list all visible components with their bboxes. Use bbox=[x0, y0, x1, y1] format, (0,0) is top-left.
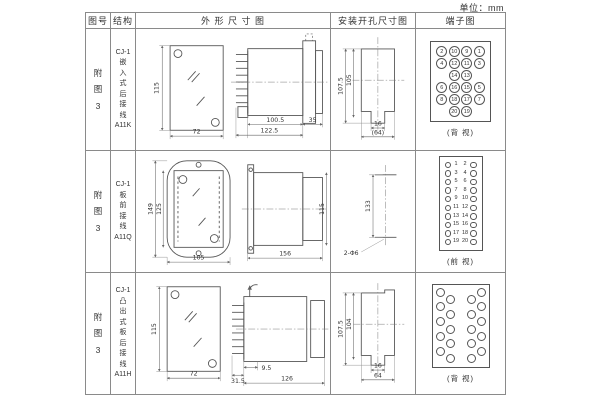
header-structure: 结构 bbox=[111, 13, 136, 29]
dim-install-spacing: 133 bbox=[365, 200, 372, 212]
terminal-circle bbox=[470, 196, 477, 203]
terminal-circle bbox=[446, 339, 455, 348]
terminal-circle bbox=[446, 325, 455, 334]
install-drawing-a11k: 107.5 105 16 (64) bbox=[332, 29, 415, 145]
terminal-number: 14 bbox=[461, 214, 469, 220]
terminal-circle bbox=[436, 347, 445, 356]
terminal-circle: 15 bbox=[461, 82, 472, 93]
terminal-circle bbox=[467, 295, 476, 304]
terminal-number: 11 bbox=[452, 205, 460, 211]
terminal-circle: 12 bbox=[449, 58, 460, 69]
dim-install-outer-w: (64) bbox=[371, 129, 384, 136]
terminal-row: 56 bbox=[445, 178, 477, 186]
terminal-circle bbox=[467, 310, 476, 319]
outline-drawing-a11q: 149 125 105 156 115 bbox=[137, 151, 330, 267]
terminal-circle: 2 bbox=[436, 46, 447, 57]
structure-cell: CJ-1 板 前 接 线 A11Q bbox=[111, 151, 136, 273]
outline-drawing-cell: 115 72 31.5 9.5 bbox=[136, 273, 331, 395]
terminal-circle: 14 bbox=[449, 70, 460, 81]
terminal-circle: 5 bbox=[474, 82, 485, 93]
install-drawing-cell: 107.5 105 16 (64) bbox=[331, 29, 416, 151]
terminal-circle bbox=[477, 288, 486, 297]
terminal-row: 21091 bbox=[436, 46, 485, 57]
terminal-diagram: 1234567891011121314151617181920 (前 视) bbox=[416, 156, 505, 267]
dim-front-width: 105 bbox=[192, 255, 204, 262]
terminal-diagram-cell: (背 视) bbox=[416, 273, 506, 395]
outline-drawing-a11h: 115 72 31.5 9.5 bbox=[137, 273, 330, 389]
dim-side-flange: 35 bbox=[308, 117, 316, 124]
terminal-circle: 11 bbox=[461, 58, 472, 69]
dim-side-total: 122.5 bbox=[260, 128, 278, 135]
header-install-holes: 安装开孔尺寸图 bbox=[331, 13, 416, 29]
terminal-row: 12 bbox=[445, 161, 477, 169]
dim-install-outer-w: 64 bbox=[373, 372, 381, 379]
terminal-circle bbox=[477, 302, 486, 311]
dim-front-height: 115 bbox=[150, 323, 157, 335]
terminal-number: 18 bbox=[461, 231, 469, 237]
terminal-circle: 4 bbox=[436, 58, 447, 69]
view-label: (前 视) bbox=[447, 256, 474, 267]
terminal-circle: 6 bbox=[436, 82, 447, 93]
terminal-number: 4 bbox=[461, 171, 469, 177]
terminal-diagram: (背 视) bbox=[416, 284, 505, 384]
terminal-circle: 9 bbox=[461, 46, 472, 57]
terminal-circle bbox=[470, 179, 477, 186]
dim-front-width: 72 bbox=[189, 371, 197, 378]
terminal-number: 20 bbox=[461, 239, 469, 245]
terminal-number: 16 bbox=[461, 222, 469, 228]
terminal-circle bbox=[470, 205, 477, 212]
terminal-block: 2109141211314136161558181772019 bbox=[430, 41, 491, 122]
terminal-circle bbox=[477, 317, 486, 326]
terminal-diagram-cell: 2109141211314136161558181772019 (背 视) bbox=[416, 29, 506, 151]
terminal-diagram-a11k: 2109141211314136161558181772019 bbox=[430, 41, 491, 122]
terminal-circle bbox=[445, 213, 452, 220]
dim-install-slot-w: 16 bbox=[373, 363, 381, 370]
terminal-number: 5 bbox=[452, 179, 460, 185]
terminal-row: 412113 bbox=[436, 58, 485, 69]
dim-install-inner-h: 104 bbox=[346, 318, 353, 330]
dim-side-terminals: 31.5 bbox=[231, 378, 245, 385]
terminal-number: 3 bbox=[452, 171, 460, 177]
table-row: 附 图 3 CJ-1 嵌 入 式 后 接 线 A11K 115 72 bbox=[86, 29, 506, 151]
terminal-row: 1516 bbox=[445, 221, 477, 229]
terminal-circle bbox=[445, 179, 452, 186]
install-drawing-a11q: 133 2-Φ6 bbox=[332, 151, 415, 267]
terminal-number: 2 bbox=[461, 162, 469, 168]
terminal-number: 1 bbox=[452, 162, 460, 168]
terminal-circle bbox=[467, 339, 476, 348]
terminal-number: 9 bbox=[452, 196, 460, 202]
install-drawing-cell: 107.5 104 16 64 bbox=[331, 273, 416, 395]
view-label: (背 视) bbox=[447, 373, 474, 384]
hatch-mark bbox=[187, 71, 199, 82]
header-terminal-diagram: 端子图 bbox=[416, 13, 506, 29]
install-drawing-cell: 133 2-Φ6 bbox=[331, 151, 416, 273]
dim-front-height: 115 bbox=[153, 82, 160, 94]
terminal-row: 1314 bbox=[445, 213, 477, 221]
header-outline-dims: 外 形 尺 寸 图 bbox=[136, 13, 331, 29]
terminal-circle: 7 bbox=[474, 94, 485, 105]
terminal-row: 78 bbox=[445, 187, 477, 195]
terminal-circle bbox=[467, 325, 476, 334]
terminal-diagram-a11q: 1234567891011121314151617181920 bbox=[439, 156, 483, 251]
terminal-circle bbox=[445, 170, 452, 177]
terminal-circle bbox=[445, 239, 452, 246]
terminal-row: 2019 bbox=[436, 106, 485, 117]
terminal-circle: 17 bbox=[461, 94, 472, 105]
figure-no-cell: 附 图 3 bbox=[86, 29, 111, 151]
terminal-number: 15 bbox=[452, 222, 460, 228]
dim-side-offset: 9.5 bbox=[261, 365, 271, 372]
terminal-diagram-cell: 1234567891011121314151617181920 (前 视) bbox=[416, 151, 506, 273]
terminal-diagram: 2109141211314136161558181772019 (背 视) bbox=[416, 41, 505, 138]
terminal-circle bbox=[436, 302, 445, 311]
header-row: 图号 结构 外 形 尺 寸 图 安装开孔尺寸图 端子图 bbox=[86, 13, 506, 29]
terminal-circle bbox=[470, 162, 477, 169]
terminal-circle bbox=[467, 354, 476, 363]
terminal-number: 7 bbox=[452, 188, 460, 194]
terminal-circle: 10 bbox=[449, 46, 460, 57]
terminal-row: 1718 bbox=[445, 230, 477, 238]
terminal-circle: 19 bbox=[461, 106, 472, 117]
terminal-circle bbox=[445, 187, 452, 194]
dim-front-outer-h: 149 bbox=[147, 203, 154, 215]
terminal-row: 34 bbox=[445, 170, 477, 178]
header-figure-no: 图号 bbox=[86, 13, 111, 29]
terminal-circle bbox=[445, 222, 452, 229]
terminal-circle bbox=[470, 213, 477, 220]
figure-no-cell: 附 图 3 bbox=[86, 151, 111, 273]
terminal-block bbox=[432, 284, 490, 368]
terminal-circle: 18 bbox=[449, 94, 460, 105]
terminal-row: 1112 bbox=[445, 204, 477, 212]
install-drawing-a11h: 107.5 104 16 64 bbox=[332, 273, 415, 389]
terminal-number: 8 bbox=[461, 188, 469, 194]
terminal-diagram-a11h bbox=[432, 284, 490, 368]
dim-side-length: 126 bbox=[281, 376, 293, 383]
table-row: 附 图 3 CJ-1 凸 出 式 板 后 接 线 A11H 115 72 bbox=[86, 273, 506, 395]
terminal-circle bbox=[470, 239, 477, 246]
terminal-circle bbox=[477, 347, 486, 356]
dim-install-inner-h: 105 bbox=[346, 74, 353, 86]
terminal-circle bbox=[477, 332, 486, 341]
terminal-circle bbox=[445, 230, 452, 237]
terminal-row: 818177 bbox=[436, 94, 485, 105]
dim-front-inner-h: 125 bbox=[155, 203, 162, 215]
terminal-row: 616155 bbox=[436, 82, 485, 93]
terminal-number: 6 bbox=[461, 179, 469, 185]
terminal-row: 910 bbox=[445, 195, 477, 203]
terminal-circle bbox=[446, 354, 455, 363]
terminal-circle: 8 bbox=[436, 94, 447, 105]
dim-install-outer-h: 107.5 bbox=[337, 320, 344, 338]
terminal-circle bbox=[436, 332, 445, 341]
dim-side-body: 100.5 bbox=[266, 117, 284, 124]
terminal-circle bbox=[445, 196, 452, 203]
table-row: 附 图 3 CJ-1 板 前 接 线 A11Q 149 125 bbox=[86, 151, 506, 273]
dim-install-slot-w: 16 bbox=[373, 121, 381, 128]
view-label: (背 视) bbox=[447, 127, 474, 138]
hatch-mark bbox=[184, 311, 196, 322]
terminal-row: 1920 bbox=[445, 238, 477, 246]
structure-cell: CJ-1 嵌 入 式 后 接 线 A11K bbox=[111, 29, 136, 151]
terminal-circle bbox=[445, 205, 452, 212]
terminal-circle bbox=[445, 162, 452, 169]
dim-side-length: 156 bbox=[279, 251, 291, 258]
terminal-circle bbox=[436, 317, 445, 326]
terminal-number: 17 bbox=[452, 231, 460, 237]
terminal-circle bbox=[470, 230, 477, 237]
dim-front-width: 72 bbox=[192, 129, 200, 136]
terminal-circle: 20 bbox=[449, 106, 460, 117]
terminal-circle bbox=[446, 310, 455, 319]
terminal-circle: 13 bbox=[461, 70, 472, 81]
dim-side-height: 115 bbox=[318, 203, 325, 215]
relay-spec-sheet: 图号 结构 外 形 尺 寸 图 安装开孔尺寸图 端子图 附 图 3 CJ-1 嵌… bbox=[85, 12, 506, 395]
terminal-circle bbox=[470, 222, 477, 229]
outline-drawing-cell: 149 125 105 156 115 bbox=[136, 151, 331, 273]
hatch-mark bbox=[193, 338, 201, 347]
terminal-number: 19 bbox=[452, 239, 460, 245]
terminal-number: 12 bbox=[461, 205, 469, 211]
hatch-mark bbox=[196, 97, 204, 106]
terminal-number: 10 bbox=[461, 196, 469, 202]
terminal-circle bbox=[446, 295, 455, 304]
terminal-circle: 3 bbox=[474, 58, 485, 69]
hatch-mark bbox=[192, 188, 205, 225]
terminal-circle: 1 bbox=[474, 46, 485, 57]
terminal-number: 13 bbox=[452, 214, 460, 220]
terminal-circle: 16 bbox=[449, 82, 460, 93]
terminal-row: 1413 bbox=[436, 70, 485, 81]
terminal-block: 1234567891011121314151617181920 bbox=[439, 156, 483, 251]
terminal-circle bbox=[436, 288, 445, 297]
dim-install-outer-h: 107.5 bbox=[337, 77, 344, 95]
figure-no-cell: 附 图 3 bbox=[86, 273, 111, 395]
outline-drawing-a11k: 115 72 100.5 1 bbox=[137, 29, 330, 145]
hole-spec-label: 2-Φ6 bbox=[343, 250, 358, 257]
terminal-circle bbox=[470, 170, 477, 177]
terminal-circle bbox=[470, 187, 477, 194]
outline-drawing-cell: 115 72 100.5 1 bbox=[136, 29, 331, 151]
structure-cell: CJ-1 凸 出 式 板 后 接 线 A11H bbox=[111, 273, 136, 395]
